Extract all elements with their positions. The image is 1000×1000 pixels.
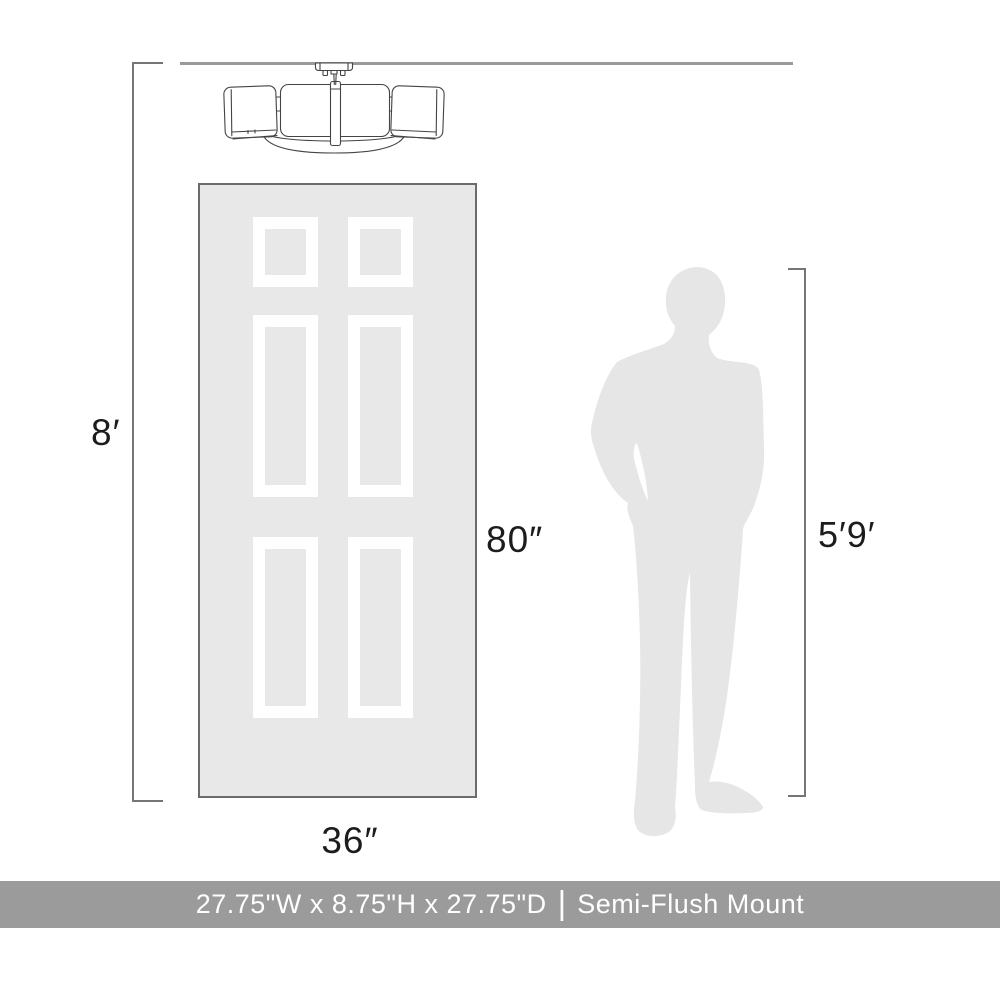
product-dimensions-text: 27.75"W x 8.75"H x 27.75"D bbox=[196, 889, 547, 920]
ceiling-height-dimension-line bbox=[132, 62, 134, 802]
ceiling-height-label: 8′ bbox=[91, 412, 121, 454]
door-panel bbox=[348, 537, 413, 718]
ceiling-height-dimension-cap-top bbox=[132, 62, 163, 64]
door-panel bbox=[253, 537, 318, 718]
light-fixture-icon bbox=[220, 55, 448, 160]
mount-type-text: Semi-Flush Mount bbox=[577, 889, 804, 920]
door-width-label: 36″ bbox=[320, 820, 380, 862]
door-silhouette bbox=[198, 183, 477, 798]
person-silhouette-icon bbox=[588, 265, 768, 840]
door-panel bbox=[348, 217, 413, 287]
door-height-label: 80″ bbox=[486, 519, 543, 561]
scale-diagram: 8′ bbox=[0, 0, 1000, 1000]
person-height-dimension-cap-top bbox=[788, 268, 806, 270]
door-panel bbox=[253, 315, 318, 497]
door-panel bbox=[253, 217, 318, 287]
person-height-label: 5′9′ bbox=[818, 514, 876, 556]
person-height-dimension-line bbox=[804, 268, 806, 797]
spec-banner: 27.75"W x 8.75"H x 27.75"D | Semi-Flush … bbox=[0, 881, 1000, 928]
door-panel bbox=[348, 315, 413, 497]
ceiling-height-dimension-cap-bottom bbox=[132, 800, 163, 802]
person-height-dimension-cap-bottom bbox=[788, 795, 806, 797]
separator-bar: | bbox=[547, 884, 578, 922]
